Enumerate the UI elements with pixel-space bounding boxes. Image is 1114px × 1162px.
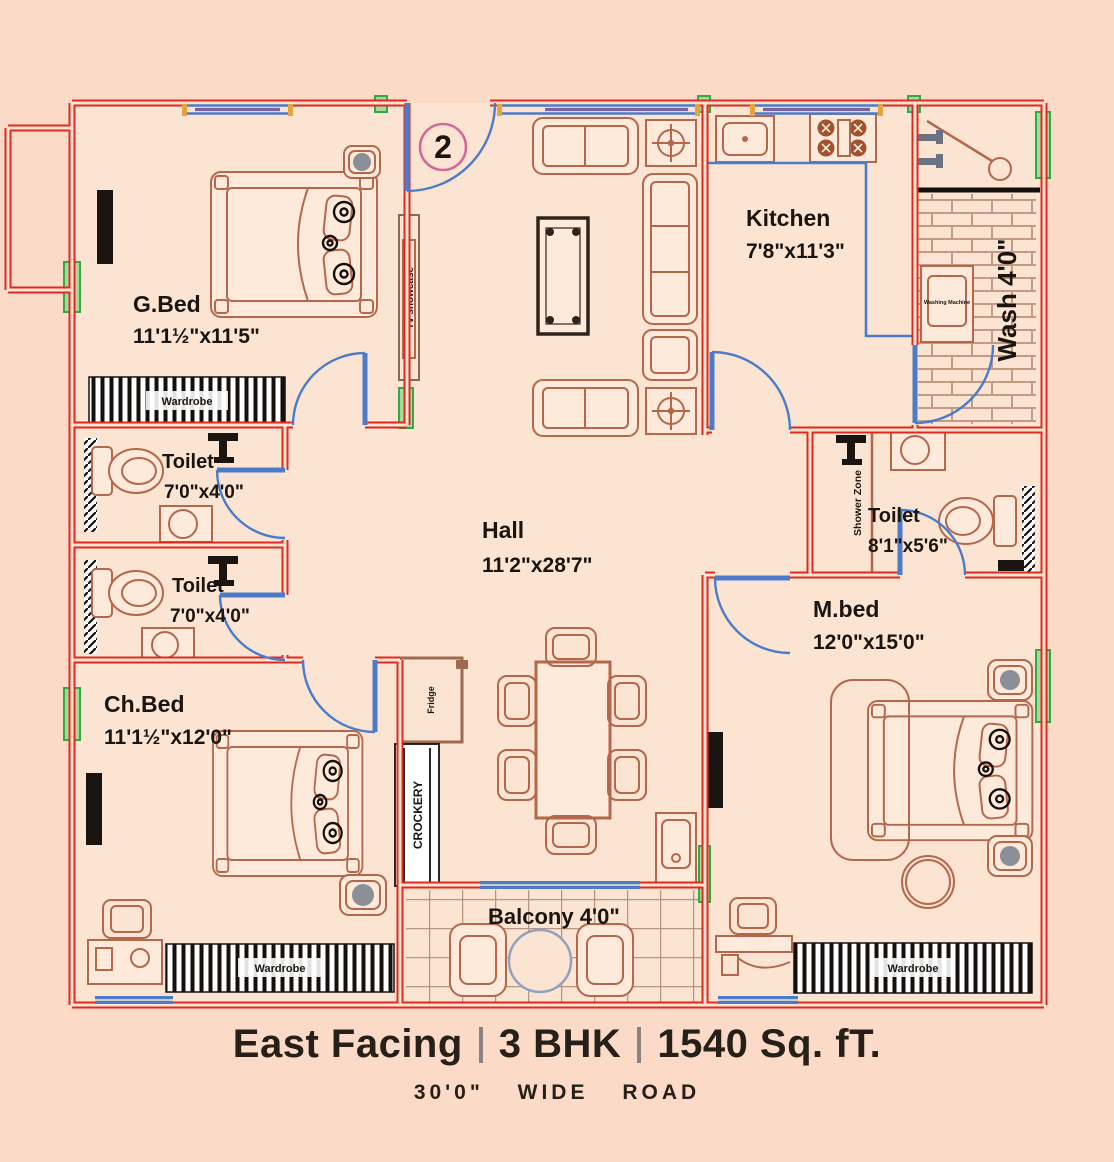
mbed-bed-icon: [868, 701, 1032, 840]
chbed-ac-unit-icon: [340, 875, 386, 915]
fridge-icon: Fridge: [400, 658, 468, 742]
floor-plan-svg: Wardrobe Tv unit Tv showcase: [0, 0, 1114, 1157]
room-label-toilet-master: Toilet: [868, 505, 920, 527]
room-label-balcony: Balcony 4'0": [488, 904, 620, 929]
sofa-bottom-icon: [533, 380, 638, 436]
divider-bar: [637, 1027, 641, 1063]
balcony-slider: [480, 881, 640, 889]
balcony-table-icon: [509, 930, 571, 992]
room-dims-toilet-bottom: 7'0"x4'0": [170, 606, 250, 627]
sofa-top-icon: [533, 118, 638, 174]
area-label: 1540 Sq. fT.: [657, 1022, 881, 1067]
footer: East Facing 3 BHK 1540 Sq. fT. 30'0" WID…: [0, 1022, 1114, 1105]
mbed-tv-unit-label: Tv unit: [711, 755, 721, 785]
mbed-wardrobe-label: Wardrobe: [888, 963, 939, 975]
sofa-single-icon: [643, 330, 697, 380]
corner-table-top-icon: [646, 120, 696, 166]
gbed-wardrobe: Wardrobe: [89, 377, 285, 424]
divider-bar: [479, 1027, 483, 1063]
chbed-bed-icon: [213, 731, 362, 876]
washing-machine-icon: Washing Machine: [921, 266, 973, 342]
room-label-chbed: Ch.Bed: [104, 691, 185, 717]
shower-zone-label: Shower Zone: [852, 470, 864, 536]
room-dims-hall: 11'2"x28'7": [482, 554, 593, 577]
center-table-icon: [538, 218, 588, 334]
gbed-ac-unit-icon: [344, 146, 380, 178]
room-label-hall: Hall: [482, 517, 524, 543]
crockery-label: CROCKERY: [411, 781, 425, 849]
room-dims-mbed: 12'0"x15'0": [813, 631, 925, 654]
washing-machine-label: Washing Machine: [924, 300, 970, 306]
room-label-gbed: G.Bed: [133, 291, 201, 317]
mbed-side-table-top-icon: [988, 660, 1032, 700]
chbed-tv-unit: Tv unit: [86, 773, 102, 845]
chbed-wardrobe-label: Wardrobe: [255, 963, 306, 975]
room-dims-gbed: 11'1½"x11'5": [133, 325, 260, 348]
facing-label: East Facing: [233, 1022, 463, 1067]
sofa-long-icon: [643, 174, 697, 324]
gbed-wardrobe-label: Wardrobe: [162, 396, 213, 408]
plan-title: East Facing 3 BHK 1540 Sq. fT.: [0, 1022, 1114, 1067]
kitchen-sink-icon: [716, 116, 774, 162]
mbed-side-table-bottom-icon: [988, 836, 1032, 876]
gbed-tv-unit-label: Tv unit: [101, 212, 111, 242]
chbed-wardrobe: Wardrobe: [166, 944, 394, 992]
room-label-mbed: M.bed: [813, 596, 879, 622]
bhk-label: 3 BHK: [499, 1022, 622, 1067]
gbed-bed-icon: [211, 172, 377, 317]
fridge-label: Fridge: [426, 686, 436, 714]
room-dims-chbed: 11'1½"x12'0": [104, 726, 232, 749]
room-label-toilet-top: Toilet: [162, 451, 214, 473]
room-dims-kitchen: 7'8"x11'3": [746, 240, 845, 263]
room-label-kitchen: Kitchen: [746, 205, 830, 231]
room-dims-toilet-top: 7'0"x4'0": [164, 482, 244, 503]
gbed-tv-unit: Tv unit: [97, 190, 113, 264]
room-label-toilet-bottom: Toilet: [172, 575, 224, 597]
hall-basin-icon: [656, 813, 696, 885]
road-label: 30'0" WIDE ROAD: [0, 1081, 1114, 1105]
mbed-wardrobe: Wardrobe: [794, 943, 1032, 993]
room-label-wash: Wash 4'0": [992, 238, 1022, 361]
stove-icon: [810, 114, 876, 162]
flat-number-badge: 2: [420, 124, 466, 170]
mbed-tv-unit: Tv unit: [708, 732, 723, 808]
chbed-tv-unit-label: Tv unit: [90, 794, 100, 824]
corner-table-bottom-icon: [646, 388, 696, 434]
balcony-chairs-icon: [450, 924, 633, 996]
flat-number: 2: [434, 129, 452, 165]
room-dims-toilet-master: 8'1"x5'6": [868, 536, 948, 557]
